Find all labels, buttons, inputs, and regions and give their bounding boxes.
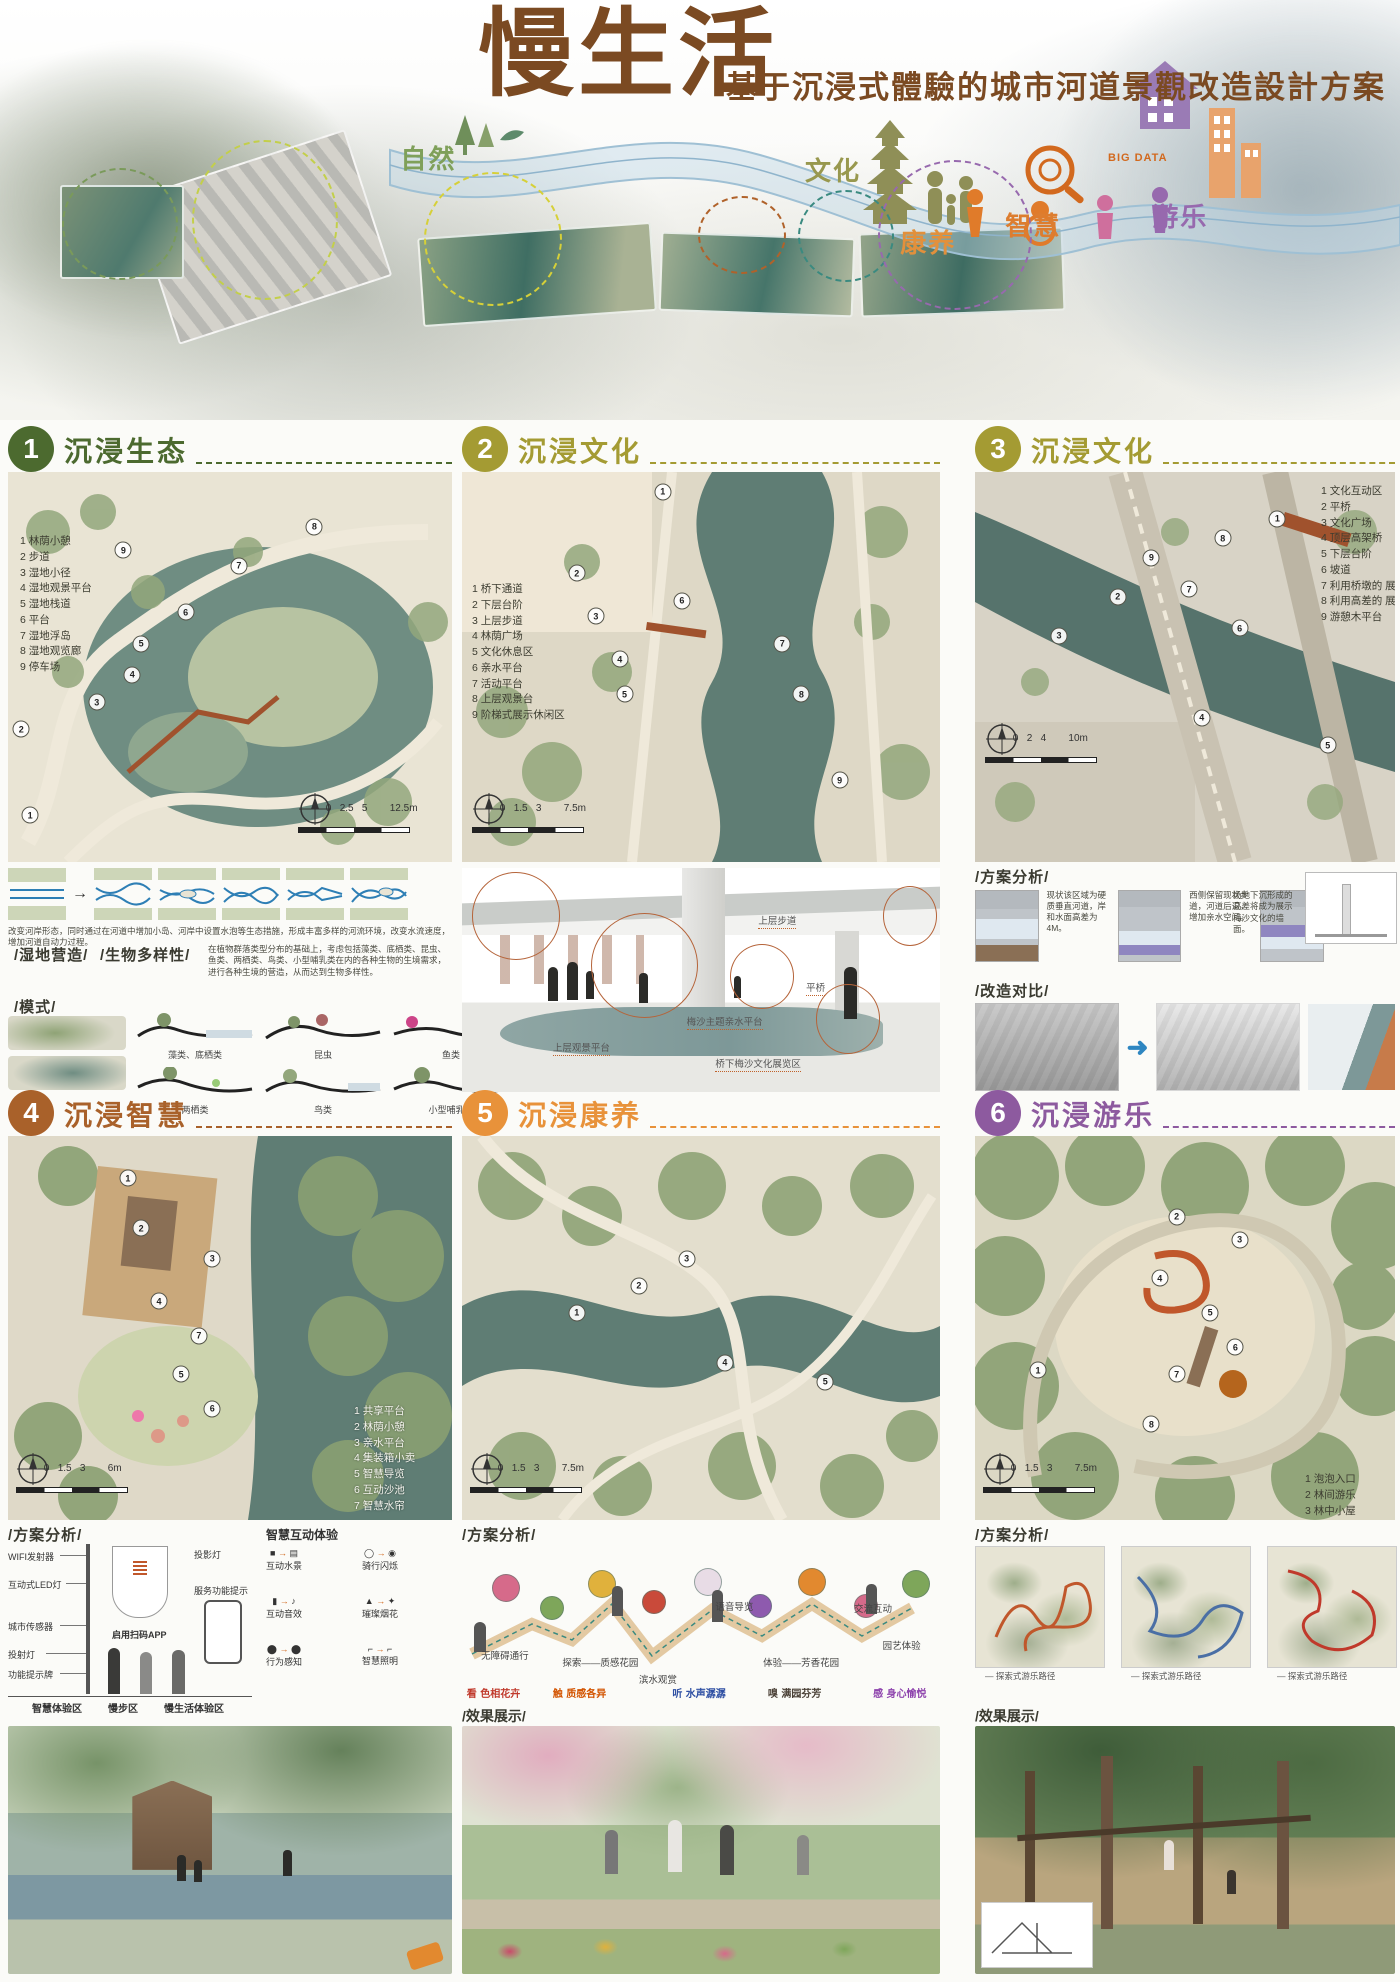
plan-marker: 2 [1168,1208,1185,1225]
arrow-icon: ➜ [1127,1032,1149,1063]
plan-marker: 9 [1143,549,1160,566]
wall-note: 场地下沉形成的高差将成为展示梅沙文化的墙面。 [1233,890,1299,936]
wetland-label: /湿地营造/ [14,944,88,965]
river-evolution-diagrams: → [8,868,408,920]
site-plan-culture-b: 1 文化互动区2 平桥3 文化广场4 顶层高架桥5 下层台阶6 坡道7 利用桥墩… [975,472,1395,862]
route-caption: — 探索式游乐路径 [1131,1670,1201,1682]
photo-before [975,1003,1119,1091]
photo-after [1156,1003,1300,1091]
section-health: 5 沉浸康养 12345 [462,1086,940,1712]
site-plan-health: 12345 0 1.5 3 7.5m [462,1136,940,1520]
inset-sketch [981,1902,1093,1968]
section-culture-a: 2 沉浸文化 1 桥下通道2 下层台阶3 上层步道4 林荫广场5 文化休息区6 … [462,420,940,1092]
site-plan-eco: 1 林荫小憩2 步道3 湿地小径4 湿地观景平台5 湿地栈道6 平台7 湿地浮岛… [8,472,452,862]
smart-pole-diagram: WIFI发射器 互动式LED灯 城市传感器 投射灯 功能提示牌 投影灯 服务功能… [8,1544,256,1712]
plan-marker: 3 [1231,1231,1248,1248]
plan-marker: 4 [611,651,628,668]
section-number-badge: 2 [462,426,508,472]
dashed-underline [650,462,940,464]
phone-icon [406,1941,445,1971]
wood-post [1193,1766,1203,1925]
sunken-wall-axon [1305,872,1397,944]
plan-marker: 3 [1051,627,1068,644]
section-title: 沉浸游乐 [1031,1094,1155,1134]
bridge-culture-render: 上层步道平桥梅沙主题亲水平台上层观景平台桥下梅沙文化展览区 [462,868,940,1092]
site-plan-culture-a: 1 桥下通道2 下层台阶3 上层步道4 林荫广场5 文化休息区6 亲水平台7 活… [462,472,940,862]
dashed-underline [196,1126,452,1128]
plan-marker: 2 [1109,588,1126,605]
analysis-label: /方案分析/ [462,1524,536,1545]
before-after-compare: ➜ [975,1002,1395,1092]
plan-marker: 4 [716,1354,733,1371]
plan-marker: 1 [22,807,39,824]
rope-beam [1017,1815,1311,1841]
section-play: 6 沉浸游乐 1 泡泡入口2 林间游乐3 林中小屋4 竹间憩5 林中行6 树根乐… [975,1086,1395,1712]
section-title: 沉浸智慧 [64,1094,188,1134]
compass-icon [983,1452,1017,1486]
plan-marker: 7 [1168,1366,1185,1383]
dashed-underline [1163,1126,1395,1128]
compass-icon [16,1452,50,1486]
section-title: 沉浸文化 [1031,430,1155,470]
plan-marker: 1 [568,1304,585,1321]
interact-title: 智慧互动体验 [266,1526,452,1543]
section-number-badge: 6 [975,1090,1021,1136]
route-caption: — 探索式游乐路径 [985,1670,1055,1682]
plan-marker: 2 [133,1220,150,1237]
section-culture-b: 3 沉浸文化 1 文化互动区2 平桥3 文化广场4 顶层高架桥5 下层台阶6 坡… [975,420,1395,1092]
plan-marker: 8 [793,686,810,703]
site-plan-smart: 1 共享平台2 林荫小憩3 亲水平台4 集装箱小卖5 智慧导览6 互动沙池7 智… [8,1136,452,1520]
plan-marker: 1 [119,1170,136,1187]
plan-marker: 9 [831,772,848,789]
mode-label: /模式/ [14,996,56,1017]
compass-icon [985,722,1019,756]
render-health-garden [462,1726,940,1974]
site-plan-play: 1 泡泡入口2 林间游乐3 林中小屋4 竹间憩5 林中行6 树根乐园7 过家家8… [975,1136,1395,1520]
plan-marker: 5 [817,1373,834,1390]
analysis-label: /方案分析/ [8,1524,82,1545]
five-senses-labels: 看 色相花卉触 质感各异听 水声潺潺嗅 满园芬芳感 身心愉悦 [462,1544,940,1712]
compass-icon [298,792,332,826]
section-title: 沉浸康养 [518,1094,642,1134]
biodiversity-note: 在植物群落类型分布的基础上，考虑包括藻类、底栖类、昆虫、鱼类、两栖类、鸟类、小型… [208,944,452,978]
render-labels: 上层步道平桥梅沙主题亲水平台上层观景平台桥下梅沙文化展览区 [462,868,940,1092]
plan-marker: 5 [173,1366,190,1383]
plan-marker: 5 [616,686,633,703]
plan-marker: 3 [678,1250,695,1267]
plan-marker: 2 [630,1277,647,1294]
effect-label: /效果展示/ [975,1706,1039,1726]
smart-interaction-panel: 智慧互动体验 ■ → ▤互动水景 ◯ → ◉骑行闪烁 ▮ → ♪互动音效 ▲ →… [266,1526,452,1712]
wood-post [1101,1756,1113,1930]
plan-marker: 9 [115,542,132,559]
route-map [1267,1546,1397,1668]
plan-marker: 7 [190,1327,207,1344]
wetland-axon-images [8,1016,128,1092]
section-number-badge: 4 [8,1090,54,1136]
banner-labels: 自然文化康养智慧游乐 [0,0,1400,420]
plan-marker: 7 [774,635,791,652]
smart-pole [86,1544,90,1694]
route-map [975,1546,1105,1668]
design-poster: 慢生活 基于沉浸式體驗的城市河道景觀改造設計方案 BIG DATA 自然文化康养… [0,0,1400,1982]
plan-marker: 4 [1193,709,1210,726]
compass-icon [472,792,506,826]
route-map [1121,1546,1251,1668]
analysis-label: /方案分析/ [975,866,1049,887]
effect-label: /效果展示/ [462,1706,526,1726]
plan-marker: 8 [306,518,323,535]
plan-marker: 4 [150,1293,167,1310]
section-number-badge: 1 [8,426,54,472]
plan-marker: 6 [177,604,194,621]
plan-marker: 1 [1030,1362,1047,1379]
plan-marker: 8 [1214,530,1231,547]
plan-marker: 5 [1319,737,1336,754]
wood-post [1025,1771,1035,1920]
plan-marker: 1 [1269,510,1286,527]
qr-code-icon [133,1561,147,1575]
plan-marker: 3 [587,608,604,625]
plan-marker: 2 [568,565,585,582]
render-play-forest [975,1726,1395,1974]
wooden-gate-structure [132,1781,212,1870]
plan-marker: 7 [230,557,247,574]
plan-marker: 3 [88,694,105,711]
analysis-label: /方案分析/ [975,1524,1049,1545]
dashed-underline [1163,462,1395,464]
plan-marker: 4 [124,666,141,683]
plan-marker: 6 [673,592,690,609]
section-smart: 4 沉浸智慧 1 共享平台2 林荫小憩3 亲水平台4 集装箱小卖5 智慧导览6 … [8,1086,452,1712]
plan-marker: 8 [1143,1416,1160,1433]
biodiversity-label: /生物多样性/ [100,944,190,965]
plan-marker: 5 [133,635,150,652]
route-caption: — 探索式游乐路径 [1277,1670,1347,1682]
plan-marker: 6 [1227,1339,1244,1356]
section-number-badge: 5 [462,1090,508,1136]
plan-marker: 2 [13,721,30,738]
wood-post [1277,1761,1289,1930]
render-smart-park [8,1726,452,1974]
plan-marker: 6 [204,1400,221,1417]
projection-cone [112,1546,168,1618]
dashed-underline [196,462,452,464]
hero-collage: 慢生活 基于沉浸式體驗的城市河道景觀改造設計方案 BIG DATA 自然文化康养… [0,0,1400,420]
section-title: 沉浸生态 [64,430,188,470]
compare-label: /改造对比/ [975,980,1049,1001]
plan-marker: 1 [654,483,671,500]
sensory-path-diagram: 无障碍通行探索——质感花园滨水观赏语音导览体验——芳香花园交流互动园艺体验 看 … [462,1544,940,1712]
plan-marker: 5 [1202,1304,1219,1321]
section-number-badge: 3 [975,426,1021,472]
compass-icon [470,1452,504,1486]
section-title: 沉浸文化 [518,430,642,470]
plan-marker: 4 [1151,1270,1168,1287]
dashed-underline [650,1126,940,1128]
section-eco: 1 沉浸生态 1 林荫小憩2 步道3 湿地小径4 湿地观景平台5 湿地栈道6 平… [8,420,452,1092]
flower-border [462,1929,940,1974]
plan-marker: 6 [1231,620,1248,637]
plan-marker: 7 [1181,581,1198,598]
render-after-color [1308,1004,1395,1090]
plan-markers: 123456789 [975,472,1395,862]
phone-icon [204,1600,242,1664]
plan-marker: 3 [204,1250,221,1267]
